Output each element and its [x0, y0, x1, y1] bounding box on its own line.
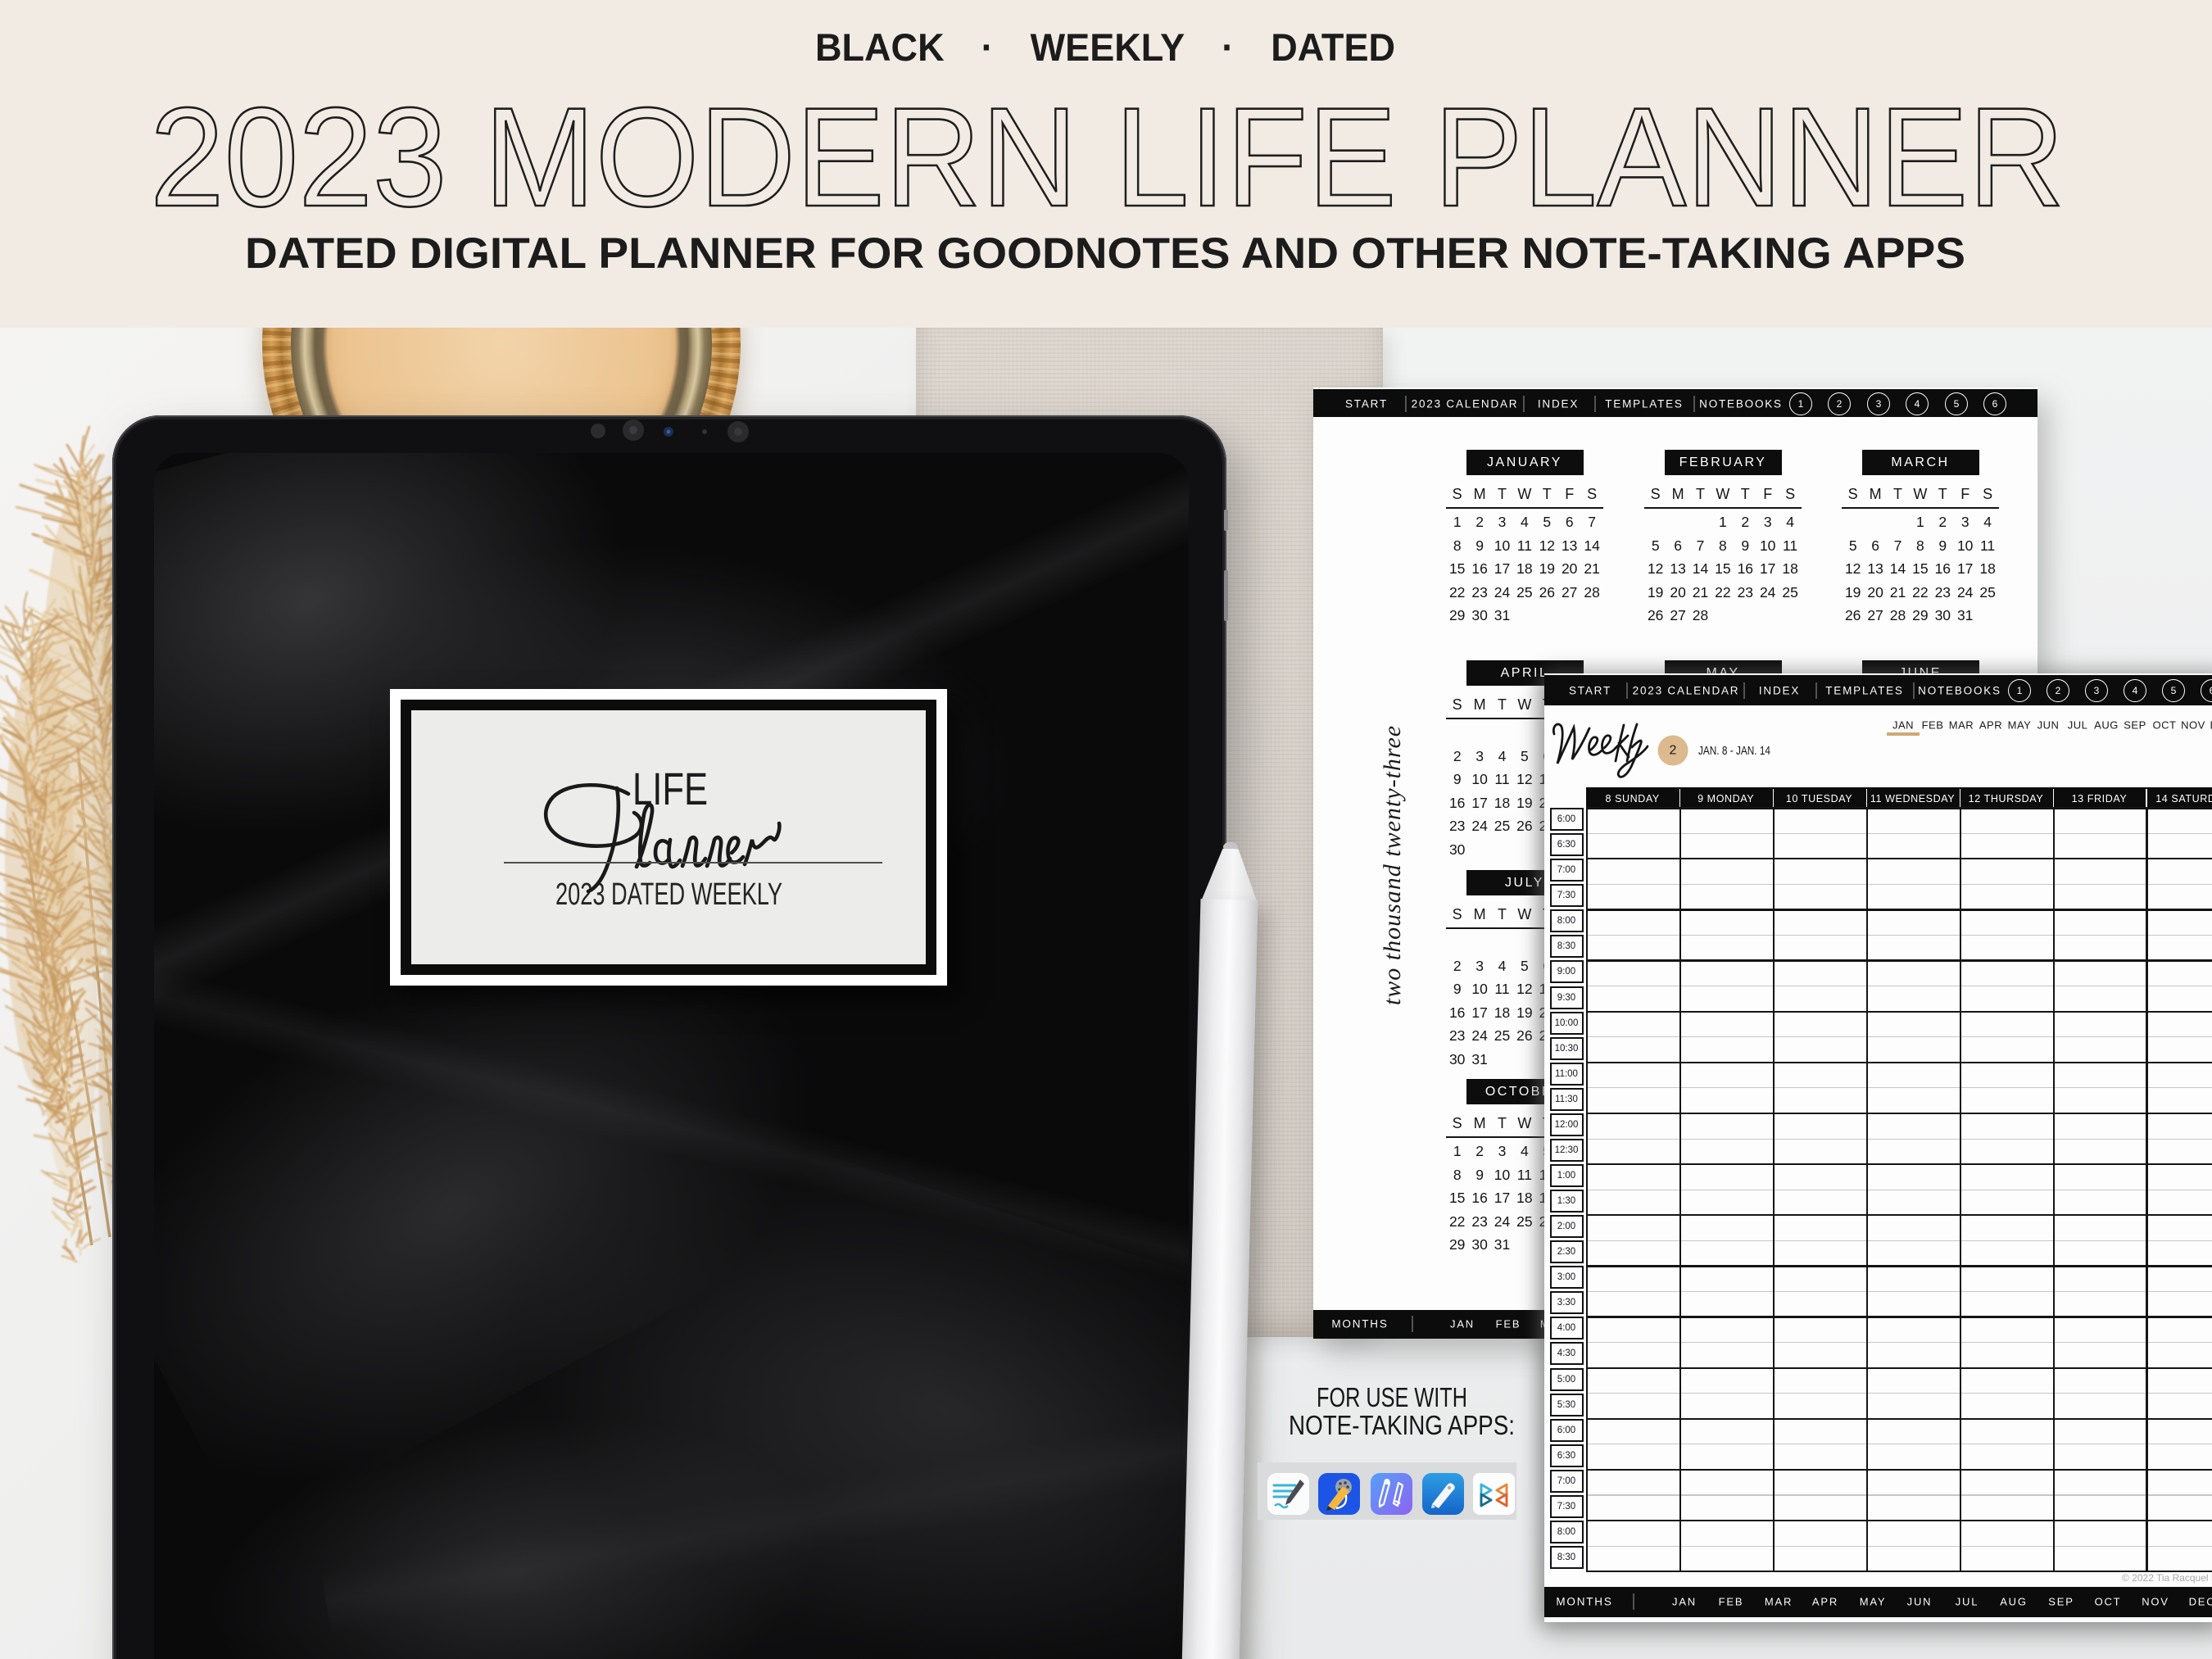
svg-text:JAN. 8 - JAN. 14: JAN. 8 - JAN. 14	[1698, 745, 1770, 758]
svg-text:NOTE-TAKING APPS:: NOTE-TAKING APPS:	[1289, 1410, 1515, 1440]
svg-text:FOR USE WITH: FOR USE WITH	[1317, 1382, 1467, 1412]
svg-text:DATED DIGITAL PLANNER FOR GOOD: DATED DIGITAL PLANNER FOR GOODNOTES AND …	[245, 229, 1965, 278]
